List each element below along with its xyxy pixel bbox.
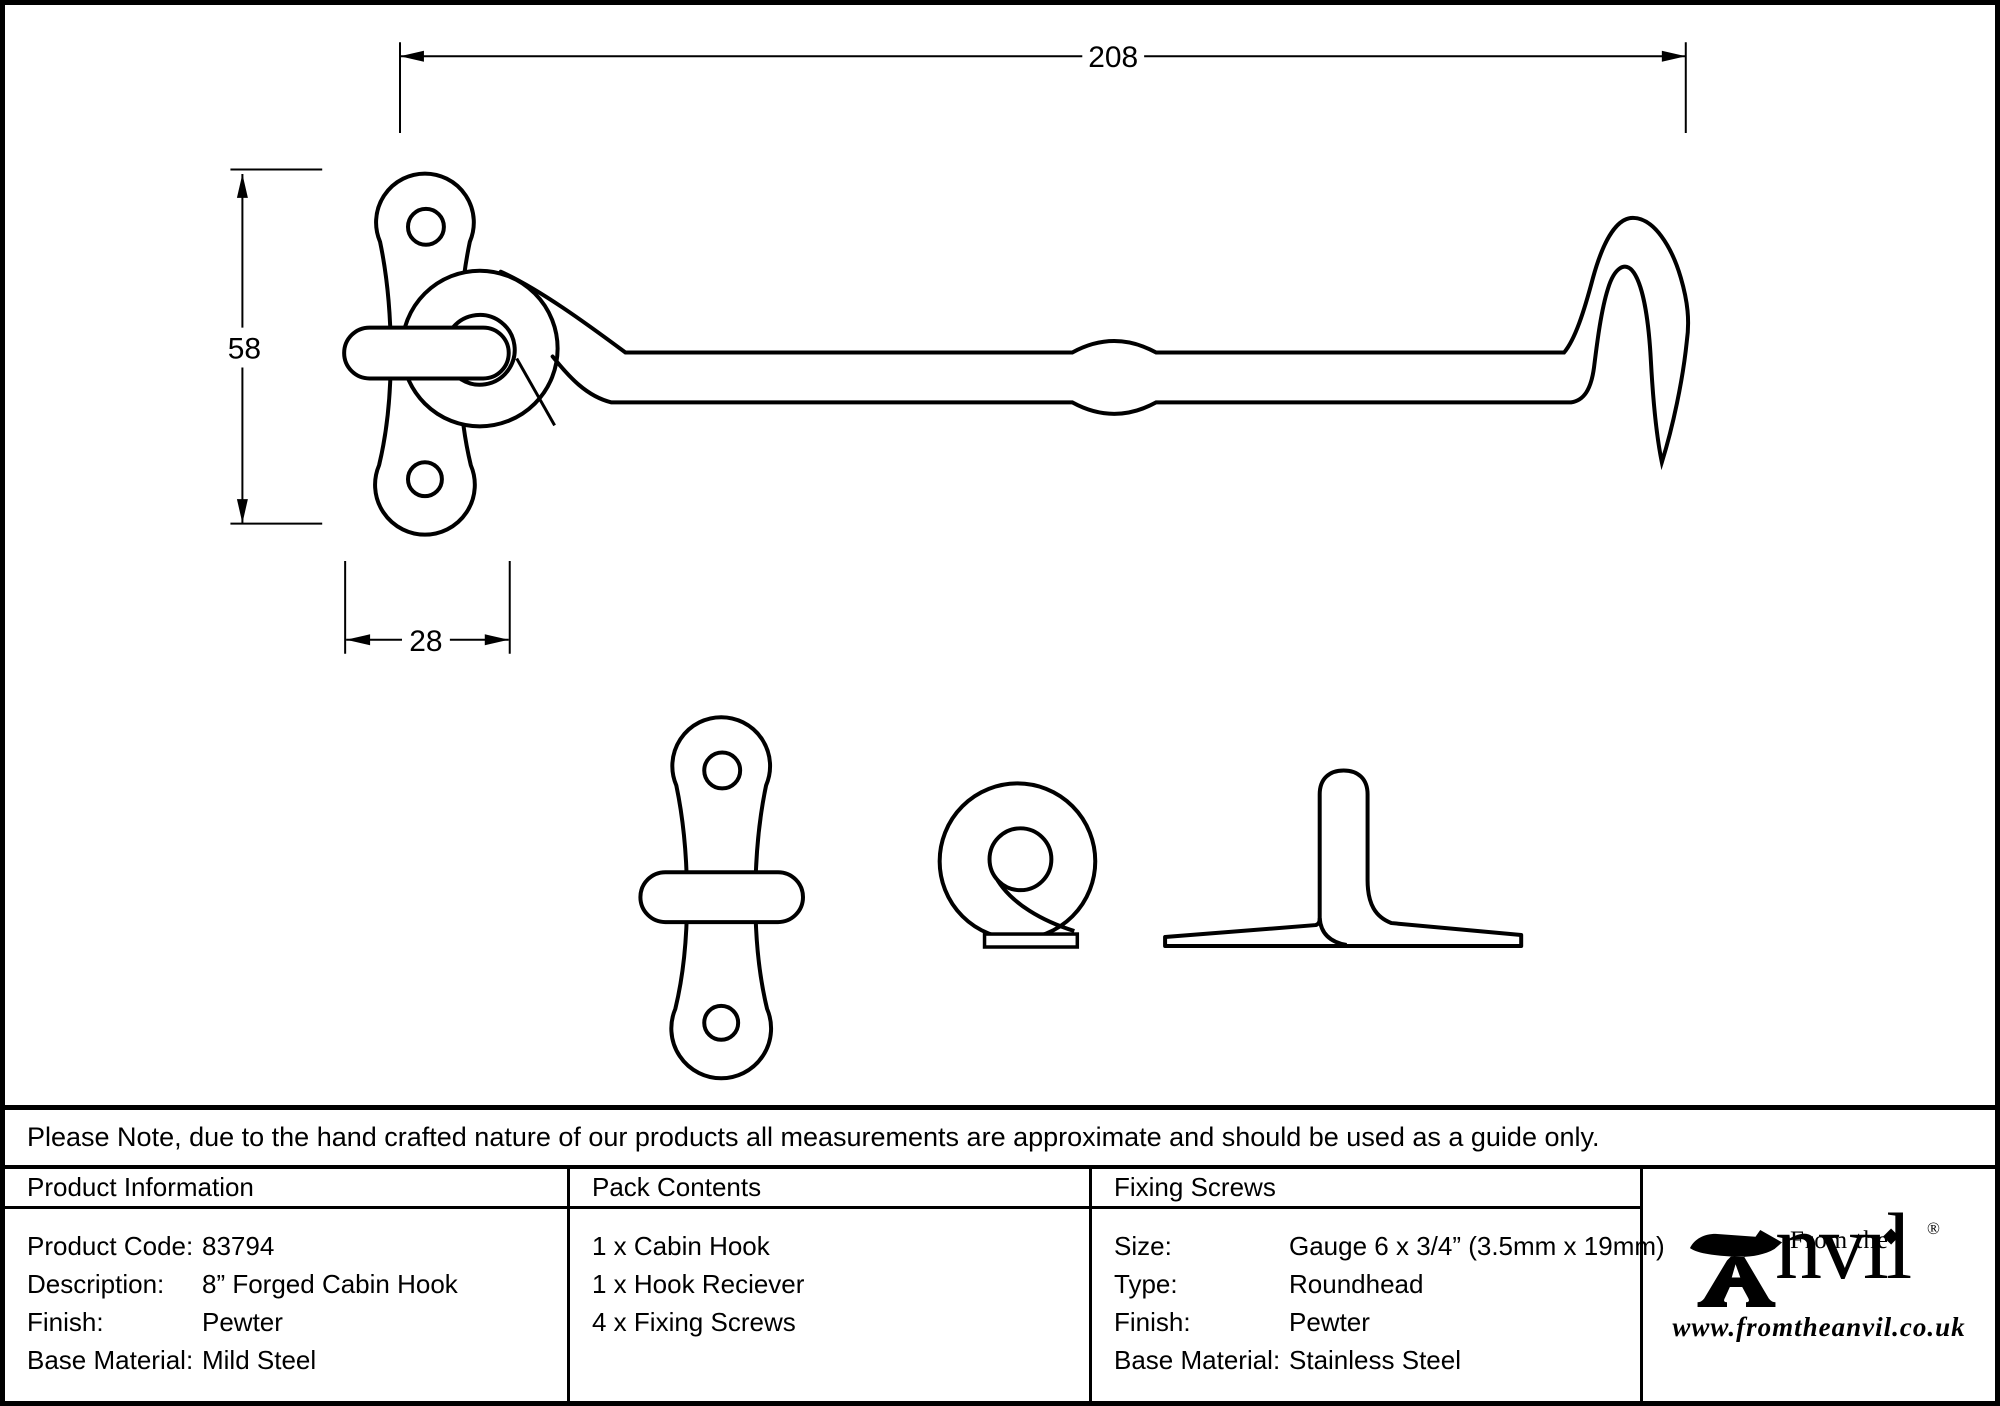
brand-name: nvıl (1775, 1200, 1909, 1294)
row-label: Base Material: (27, 1341, 202, 1379)
receiver-side-outline (1165, 770, 1521, 946)
wire-eye-view (940, 783, 1096, 947)
row-value: Roundhead (1289, 1265, 1423, 1303)
wire-eye-base (985, 934, 1078, 947)
dim-plate-height-label: 58 (228, 332, 261, 365)
list-item: 1 x Hook Reciever (592, 1265, 1089, 1303)
note-text: Please Note, due to the hand crafted nat… (27, 1122, 1600, 1153)
brand-logo-cell: From the ◆ nvıl ® www.fromtheanvil.co.uk (1643, 1169, 1995, 1401)
row-value: Pewter (202, 1303, 283, 1341)
brand-website: www.fromtheanvil.co.uk (1672, 1312, 1965, 1343)
from-the-anvil-logo: From the ◆ nvıl ® www.fromtheanvil.co.uk (1672, 1227, 1965, 1343)
spec-sheet-page: 208 58 28 (0, 0, 2000, 1406)
technical-drawing: 208 58 28 (5, 5, 1995, 1105)
product-information-column: Product Information Product Code: 83794 … (5, 1169, 570, 1401)
spec-table: Product Information Product Code: 83794 … (5, 1165, 1995, 1401)
fixing-screws-header: Fixing Screws (1092, 1169, 1640, 1209)
pack-contents-header: Pack Contents (570, 1169, 1089, 1209)
row-label: Description: (27, 1265, 202, 1303)
row-value: 83794 (202, 1227, 274, 1265)
row-value: Stainless Steel (1289, 1341, 1461, 1379)
row-value: Pewter (1289, 1303, 1370, 1341)
table-row: Size: Gauge 6 x 3/4” (3.5mm x 19mm) (1114, 1227, 1640, 1265)
product-information-header: Product Information (5, 1169, 567, 1209)
table-row: Base Material: Stainless Steel (1114, 1341, 1640, 1379)
row-label: Product Code: (27, 1227, 202, 1265)
receiver-pin (640, 872, 803, 922)
row-label: Finish: (1114, 1303, 1289, 1341)
pack-contents-body: 1 x Cabin Hook 1 x Hook Reciever 4 x Fix… (570, 1209, 1089, 1341)
registered-trademark: ® (1927, 1219, 1940, 1239)
table-row: Description: 8” Forged Cabin Hook (27, 1265, 567, 1303)
backplate-screw-hole-top (408, 209, 444, 245)
table-row: Base Material: Mild Steel (27, 1341, 567, 1379)
dim-length-label: 208 (1088, 41, 1138, 74)
pack-contents-column: Pack Contents 1 x Cabin Hook 1 x Hook Re… (570, 1169, 1092, 1401)
brand-lockup: From the ◆ nvıl ® (1689, 1227, 1949, 1307)
hook-shaft-and-hook (501, 218, 1688, 462)
dim-plate-width-label: 28 (409, 625, 442, 658)
row-label: Size: (1114, 1227, 1289, 1265)
row-label: Finish: (27, 1303, 202, 1341)
receiver-screw-hole-bottom (704, 1006, 738, 1040)
receiver-side-view (1165, 770, 1521, 946)
fixing-screws-column: Fixing Screws Size: Gauge 6 x 3/4” (3.5m… (1092, 1169, 1643, 1401)
row-label: Base Material: (1114, 1341, 1289, 1379)
row-label: Type: (1114, 1265, 1289, 1303)
product-information-body: Product Code: 83794 Description: 8” Forg… (5, 1209, 567, 1379)
receiver-screw-hole-top (704, 753, 740, 789)
row-value: Gauge 6 x 3/4” (3.5mm x 19mm) (1289, 1227, 1665, 1265)
table-row: Product Code: 83794 (27, 1227, 567, 1265)
pivot-pin (344, 328, 509, 379)
backplate-screw-hole-bottom (408, 462, 442, 496)
table-row: Finish: Pewter (1114, 1303, 1640, 1341)
row-value: Mild Steel (202, 1341, 316, 1379)
receiver-plate-view (640, 717, 803, 1078)
anvil-icon (1689, 1229, 1784, 1309)
wire-eye-outer (940, 783, 1096, 939)
table-row: Type: Roundhead (1114, 1265, 1640, 1303)
fixing-screws-body: Size: Gauge 6 x 3/4” (3.5mm x 19mm) Type… (1092, 1209, 1640, 1379)
list-item: 4 x Fixing Screws (592, 1303, 1089, 1341)
cabin-hook-assembly (344, 174, 1688, 535)
table-row: Finish: Pewter (27, 1303, 567, 1341)
note-bar: Please Note, due to the hand crafted nat… (5, 1105, 1995, 1165)
list-item: 1 x Cabin Hook (592, 1227, 1089, 1265)
row-value: 8” Forged Cabin Hook (202, 1265, 458, 1303)
